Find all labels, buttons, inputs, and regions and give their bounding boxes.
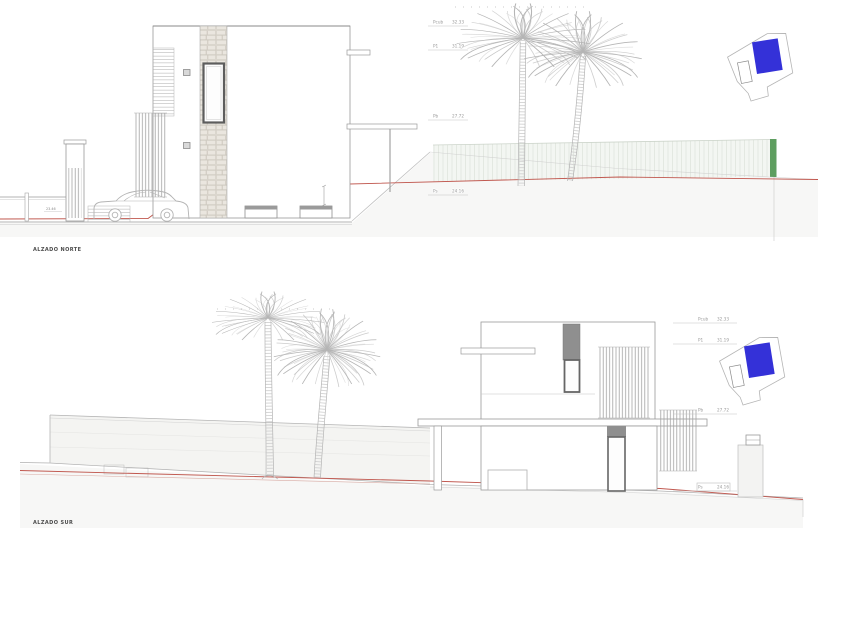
basement-window (300, 206, 332, 218)
vent-lower (184, 143, 191, 149)
level-value: 24.16 (452, 189, 464, 194)
vent-upper (184, 70, 191, 76)
level-label: Pb (433, 114, 439, 119)
column (434, 426, 442, 490)
level-value: 32.33 (717, 317, 729, 322)
elevations-svg: 23.46 Pcub 32.33 P1 31.19 Pb 27.72 Ps 24… (0, 0, 865, 623)
level-label: Ps (698, 485, 703, 490)
level-value: 31.19 (452, 44, 464, 49)
fence-gate-north: 23.46 (0, 113, 167, 222)
level-value: 24.16 (717, 485, 729, 490)
level-label: P1 (433, 44, 439, 49)
level-value: 32.33 (452, 20, 464, 25)
elevation-north: 23.46 Pcub 32.33 P1 31.19 Pb 27.72 Ps 24… (0, 0, 818, 253)
drawing-title-north: ALZADO NORTE (33, 247, 82, 253)
key-plan-south (716, 334, 790, 408)
upper-canopy (461, 348, 535, 354)
drawing-sheet: 23.46 Pcub 32.33 P1 31.19 Pb 27.72 Ps 24… (0, 0, 865, 623)
house-south (418, 322, 763, 497)
pergola-slab (347, 124, 417, 129)
car-wheel (161, 209, 173, 221)
palm-crown (454, 0, 594, 72)
fence-post (25, 193, 29, 221)
drawing-title-south: ALZADO SUR (33, 520, 73, 526)
hedge-texture (433, 140, 770, 182)
key-plan-north (724, 30, 798, 104)
street-level-text: 23.46 (46, 207, 56, 211)
gate-pillar-cap (64, 140, 86, 144)
level-label: Pb (698, 408, 704, 413)
entrance-door (608, 437, 625, 491)
house-north (153, 26, 417, 218)
chimney-panel (563, 324, 580, 360)
slat-screen-upper (598, 347, 650, 418)
basement-window (245, 206, 277, 218)
side-tower (738, 445, 763, 497)
slat-fence (134, 113, 167, 197)
slat-screen-right (659, 410, 697, 471)
door-header (607, 426, 626, 437)
gate-slats (69, 168, 82, 218)
level-label: Pcub (433, 20, 443, 25)
level-value: 27.72 (452, 114, 464, 119)
palm-trunk (522, 40, 524, 186)
upper-window (565, 360, 580, 392)
level-label: Pcub (698, 317, 708, 322)
green-boundary-wall (770, 139, 777, 177)
level-label: Ps (433, 189, 438, 194)
level-value: 27.72 (717, 408, 729, 413)
low-window (488, 470, 527, 490)
louver-panel (153, 48, 174, 116)
level-label: P1 (698, 338, 704, 343)
roof-canopy (347, 50, 370, 55)
car-wheel (109, 209, 121, 221)
elevation-south: Pcub 32.33 P1 31.19 Pb 27.72 Ps 24.16 AL… (20, 289, 803, 528)
house-body (153, 26, 350, 218)
level-value: 31.19 (717, 338, 729, 343)
